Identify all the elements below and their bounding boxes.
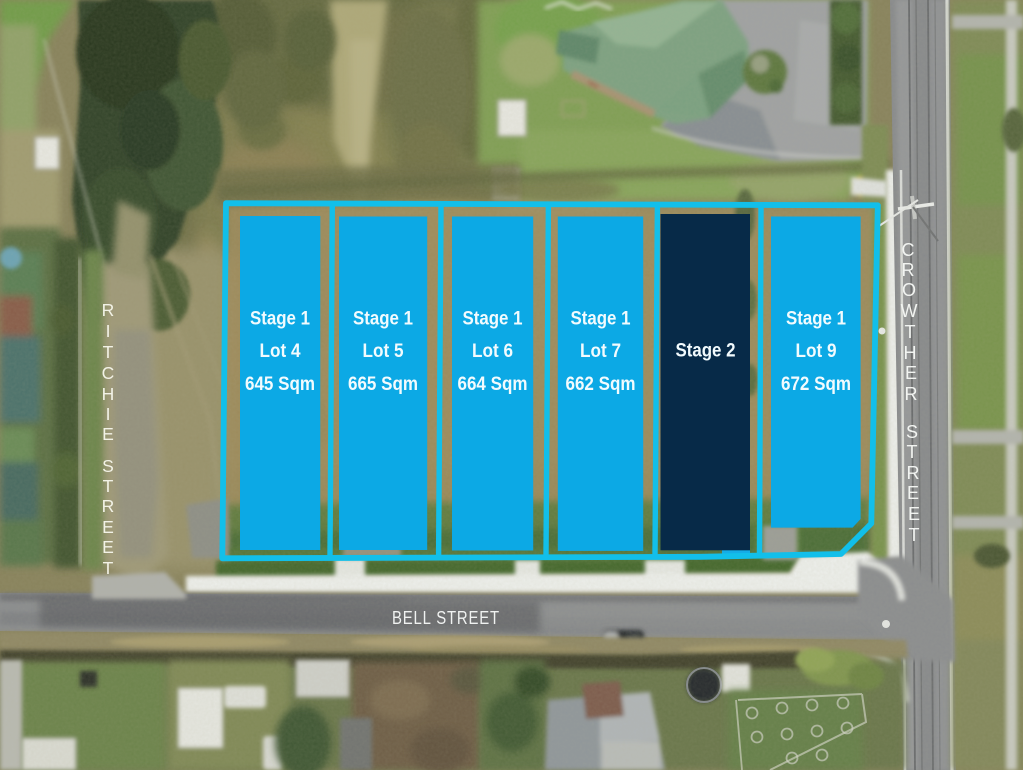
svg-text:664 Sqm: 664 Sqm: [458, 374, 528, 395]
svg-text:Lot 7: Lot 7: [580, 341, 621, 362]
svg-text:Stage 1: Stage 1: [250, 309, 310, 330]
svg-text:T: T: [103, 558, 114, 578]
svg-text:R: R: [902, 260, 915, 280]
svg-text:I: I: [106, 321, 111, 341]
svg-text:T: T: [907, 442, 918, 462]
svg-text:R: R: [102, 496, 115, 516]
svg-text:W: W: [901, 301, 918, 321]
svg-text:BELL STREET: BELL STREET: [392, 608, 500, 628]
svg-text:E: E: [102, 517, 114, 537]
svg-text:C: C: [102, 363, 115, 383]
svg-text:R: R: [102, 300, 115, 320]
svg-text:662 Sqm: 662 Sqm: [566, 374, 636, 395]
svg-text:Lot 4: Lot 4: [260, 341, 301, 362]
svg-text:R: R: [905, 384, 918, 404]
svg-text:E: E: [102, 424, 114, 444]
svg-text:665 Sqm: 665 Sqm: [348, 374, 418, 395]
svg-text:O: O: [902, 280, 916, 300]
svg-text:Stage 1: Stage 1: [571, 309, 631, 330]
svg-text:E: E: [908, 504, 920, 524]
svg-text:Stage 1: Stage 1: [463, 309, 523, 330]
svg-text:S: S: [102, 456, 114, 476]
svg-text:H: H: [102, 384, 115, 404]
svg-text:R: R: [907, 463, 920, 483]
svg-text:I: I: [106, 404, 111, 424]
svg-text:T: T: [103, 476, 114, 496]
svg-text:645 Sqm: 645 Sqm: [245, 374, 315, 395]
svg-text:Stage 1: Stage 1: [786, 309, 846, 330]
svg-text:E: E: [907, 483, 919, 503]
svg-text:Stage 2: Stage 2: [676, 341, 736, 362]
svg-text:672 Sqm: 672 Sqm: [781, 374, 851, 395]
svg-text:Stage 1: Stage 1: [353, 309, 413, 330]
svg-text:Lot 5: Lot 5: [363, 341, 404, 362]
svg-text:E: E: [905, 363, 917, 383]
svg-text:H: H: [904, 343, 917, 363]
svg-text:T: T: [909, 525, 920, 545]
svg-text:S: S: [906, 422, 918, 442]
svg-text:C: C: [902, 240, 915, 260]
svg-text:E: E: [102, 537, 114, 557]
svg-text:Lot 9: Lot 9: [796, 341, 837, 362]
svg-text:Lot 6: Lot 6: [472, 341, 513, 362]
svg-text:T: T: [905, 322, 916, 342]
svg-text:T: T: [103, 342, 114, 362]
